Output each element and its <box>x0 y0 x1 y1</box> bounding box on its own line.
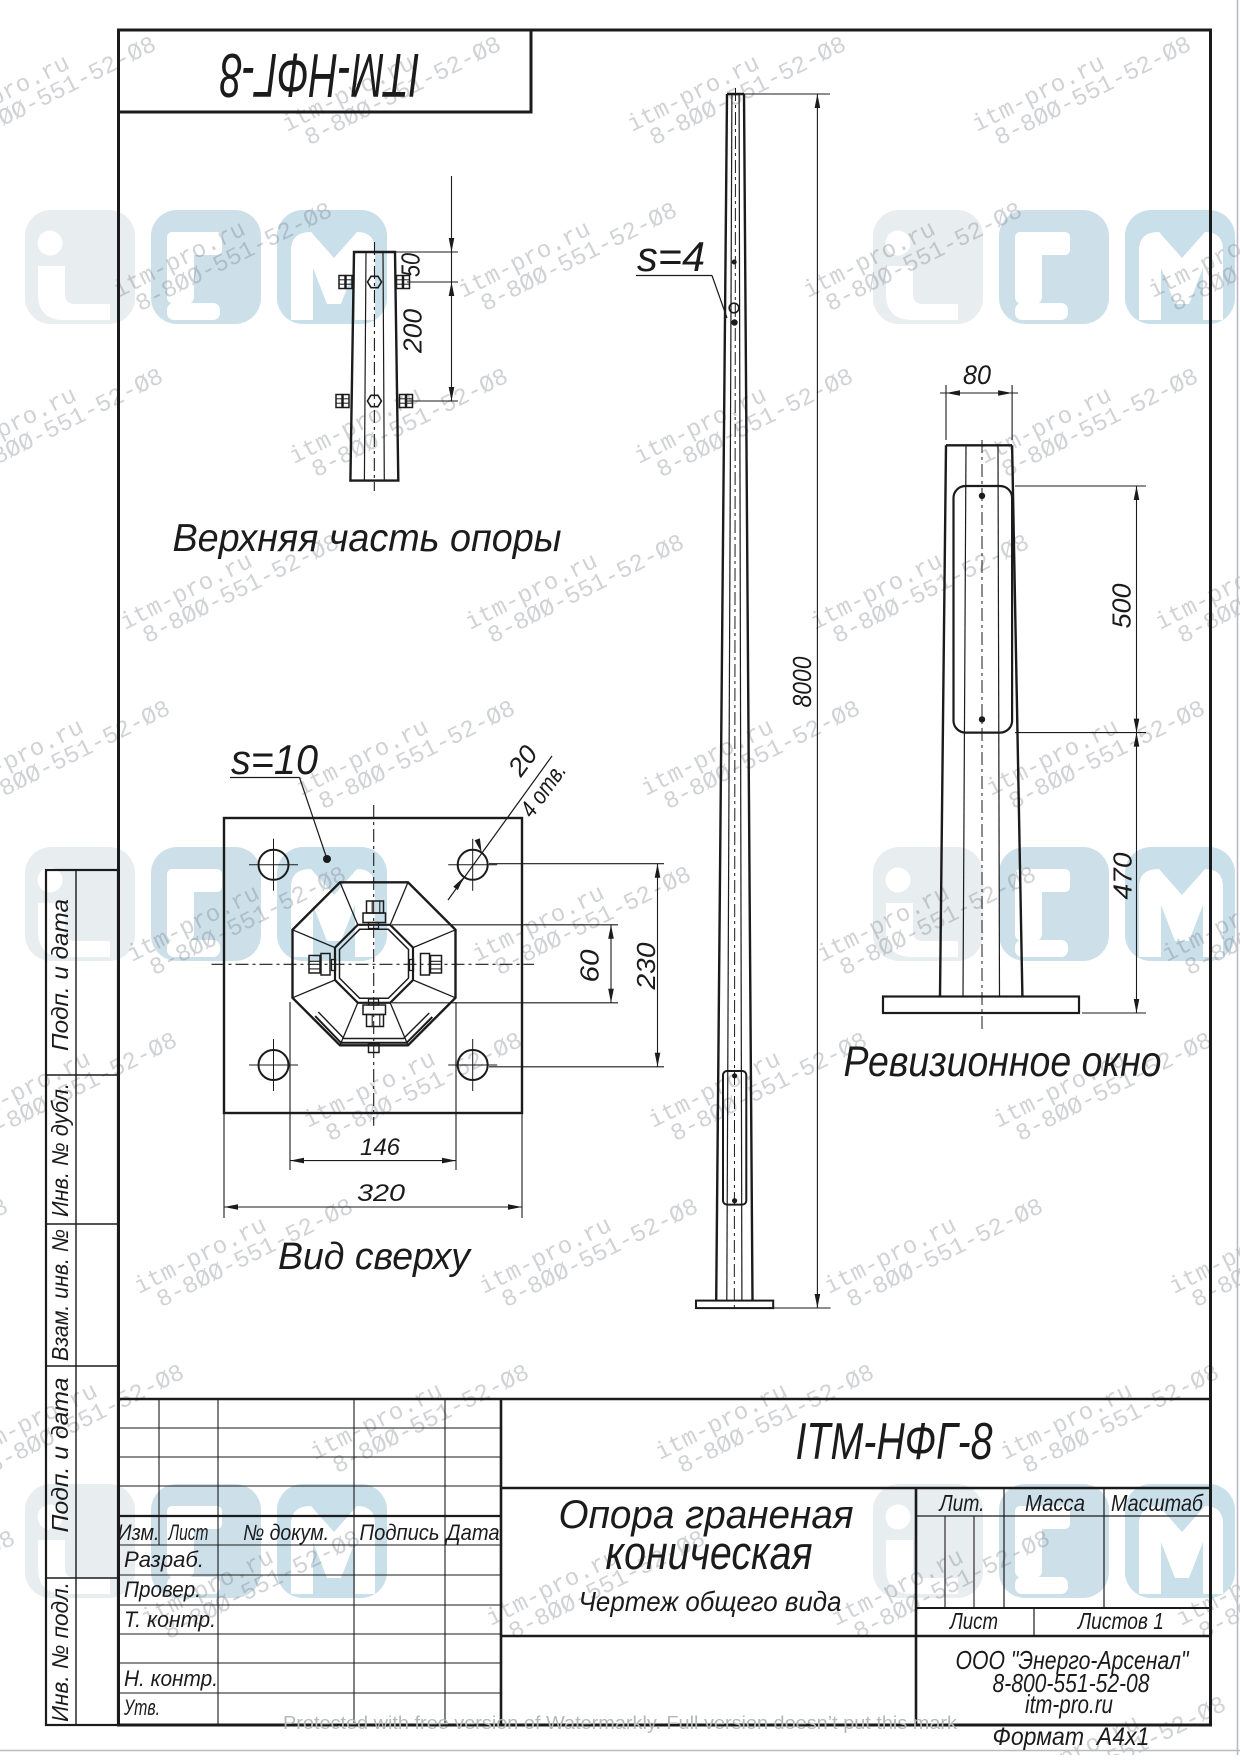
svg-text:Н. контр.: Н. контр. <box>124 1666 218 1691</box>
svg-text:Подп. и дата: Подп. и дата <box>47 1378 73 1533</box>
svg-text:itm-pro.ru: itm-pro.ru <box>1025 1689 1113 1719</box>
svg-text:80: 80 <box>963 360 991 390</box>
svg-text:Инв. № подл.: Инв. № подл. <box>47 1582 73 1722</box>
svg-text:Формат A4x1: Формат A4x1 <box>993 1723 1150 1751</box>
svg-text:Инв. № дубл.: Инв. № дубл. <box>47 1083 73 1217</box>
svg-text:ITM-НФГ-8: ITM-НФГ-8 <box>220 40 420 109</box>
svg-text:200: 200 <box>398 308 428 354</box>
svg-text:8000: 8000 <box>787 656 817 707</box>
svg-text:Провер.: Провер. <box>124 1577 201 1602</box>
svg-text:146: 146 <box>360 1134 401 1161</box>
svg-text:Лист: Лист <box>948 1608 998 1634</box>
svg-text:470: 470 <box>1108 852 1138 900</box>
svg-text:Изм.: Изм. <box>118 1520 160 1545</box>
svg-text:Чертеж общего вида: Чертеж общего вида <box>579 1586 842 1617</box>
svg-text:Вид сверху: Вид сверху <box>278 1236 472 1278</box>
svg-text:Protected with free version of: Protected with free version of Watermark… <box>283 1713 958 1733</box>
svg-text:Взам. инв. №: Взам. инв. № <box>47 1229 73 1361</box>
svg-text:Т. контр.: Т. контр. <box>124 1607 216 1632</box>
svg-text:коническая: коническая <box>606 1526 813 1579</box>
svg-text:Ревизионное окно: Ревизионное окно <box>844 1038 1162 1086</box>
svg-text:Листов 1: Листов 1 <box>1076 1608 1164 1634</box>
svg-text:s=4: s=4 <box>637 233 705 280</box>
svg-text:60: 60 <box>575 949 605 983</box>
svg-text:Лит.: Лит. <box>938 1490 985 1516</box>
svg-text:Дата: Дата <box>444 1520 500 1545</box>
svg-text:Лист: Лист <box>167 1520 208 1545</box>
svg-text:50: 50 <box>396 253 426 277</box>
svg-text:320: 320 <box>357 1180 406 1207</box>
svg-text:Подпись: Подпись <box>360 1520 440 1545</box>
svg-text:Масштаб: Масштаб <box>1111 1490 1204 1516</box>
svg-text:Разраб.: Разраб. <box>124 1547 204 1572</box>
svg-text:Верхняя часть опоры: Верхняя часть опоры <box>173 517 562 560</box>
svg-text:ITM-НФГ-8: ITM-НФГ-8 <box>796 1413 993 1471</box>
svg-text:Утв.: Утв. <box>123 1695 160 1720</box>
svg-text:Подп. и дата: Подп. и дата <box>47 899 73 1051</box>
svg-text:№ докум.: № докум. <box>243 1520 329 1545</box>
svg-text:s=10: s=10 <box>231 736 319 783</box>
svg-text:500: 500 <box>1107 583 1137 629</box>
svg-text:Масса: Масса <box>1025 1490 1085 1516</box>
svg-text:230: 230 <box>631 942 661 991</box>
